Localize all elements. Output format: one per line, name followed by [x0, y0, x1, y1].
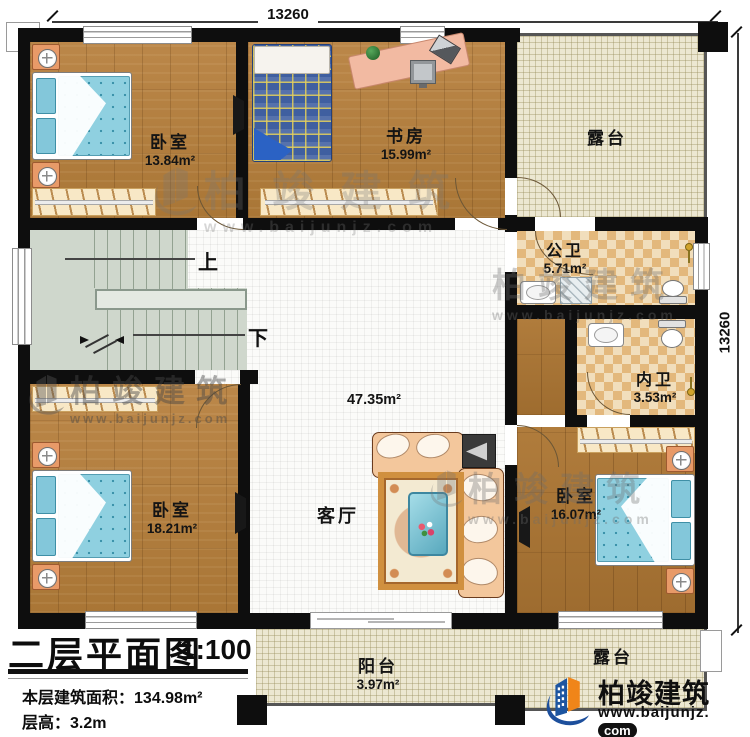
label-living: 客厅 [306, 502, 370, 528]
wall-tv-icon [233, 95, 244, 135]
label-bedroom-r: 卧室 16.07m² [536, 482, 616, 522]
toilet-bowl [662, 280, 684, 297]
sink [520, 281, 556, 304]
wall-stair-bottom [18, 370, 195, 384]
window [83, 26, 192, 44]
lamp-icon [672, 451, 691, 470]
pillow [36, 78, 56, 114]
room-name: 书房 [366, 122, 446, 147]
wall-bath-divider [505, 305, 708, 319]
window [558, 611, 663, 629]
wardrobe [32, 386, 158, 412]
label-public-bath: 公卫 5.71m² [532, 237, 598, 276]
plan-scale: 1:100 [180, 634, 252, 666]
floor-bath-corridor [517, 319, 565, 415]
stair-down-leader [133, 334, 245, 336]
door-study [455, 178, 507, 230]
daybed-pillow [254, 46, 330, 74]
wall-ensuite-bottom [565, 415, 587, 427]
lamp-icon [38, 167, 57, 186]
monitor-stand [419, 84, 427, 88]
monitor-icon [410, 60, 436, 84]
wall-living-right [505, 272, 517, 425]
dimension-line-right [737, 33, 739, 633]
room-name: 卧室 [132, 496, 212, 521]
room-name: 卧室 [536, 482, 616, 507]
floor-area-value: 134.98m² [134, 690, 203, 707]
brand-logo: 柏竣建筑 www.baijunjz.com [538, 666, 748, 732]
wardrobe [32, 188, 156, 216]
floor-area-label: 本层建筑面积： [22, 690, 134, 707]
label-bedroom-bl: 卧室 18.21m² [132, 496, 212, 536]
toilet-tank [659, 296, 687, 304]
brand-logo-icon [538, 668, 596, 730]
label-balcony: 阳台 3.97m² [338, 652, 418, 692]
wall-terrace-bath [595, 217, 708, 231]
room-name: 公卫 [532, 237, 598, 261]
floor-area-line: 本层建筑面积：134.98m² [22, 684, 203, 708]
pillow [36, 476, 56, 514]
room-area: 13.84m² [130, 153, 210, 168]
nightstand [666, 446, 694, 472]
window [12, 248, 32, 345]
dimension-line-top [52, 21, 718, 23]
dimension-top-label: 13260 [258, 6, 318, 23]
wall-living-right [505, 465, 517, 613]
floor-drain-icon [687, 388, 695, 396]
room-area: 15.99m² [366, 147, 446, 162]
toilet-tank [658, 320, 686, 328]
column [495, 695, 525, 725]
lamp-icon [672, 573, 691, 592]
toilet-bowl [661, 329, 683, 348]
pillow [36, 118, 56, 154]
wall-tv-icon [235, 492, 246, 534]
pillow [36, 518, 56, 556]
room-area: 18.21m² [132, 521, 212, 536]
wall-stair-bottom [240, 370, 258, 384]
plant-icon [366, 46, 380, 60]
corner-tv [462, 434, 496, 468]
brand-url-suffix: com [598, 723, 637, 737]
drain-stem [688, 251, 690, 263]
stair-up-leader [65, 258, 195, 260]
column [698, 22, 728, 52]
lamp-icon [38, 49, 57, 68]
room-name: 露台 [572, 124, 642, 149]
shower [560, 277, 592, 304]
floor-height-value: 3.2m [70, 715, 106, 732]
room-area: 5.71m² [532, 261, 598, 276]
floor-plan: 13260 13260 上 下 [0, 0, 750, 737]
lamp-icon [38, 569, 57, 588]
stair-handrail [95, 289, 247, 310]
wardrobe [260, 188, 438, 216]
balcony-parapet [254, 703, 524, 706]
door-bedroom-tl [197, 186, 243, 230]
room-name: 阳台 [338, 652, 418, 677]
nightstand [32, 564, 60, 590]
pillow [671, 522, 691, 560]
dimension-right-label: 13260 [717, 303, 734, 363]
brand-url-prefix: www.baijunjz. [598, 704, 710, 721]
room-name: 卧室 [130, 128, 210, 153]
nightstand [32, 162, 60, 188]
wall-ensuite-left [565, 319, 577, 415]
terrace-top-parapet [517, 33, 707, 36]
stair-landing-lower [30, 288, 97, 370]
pillow [671, 480, 691, 518]
label-living-area: 47.35m² [342, 392, 406, 408]
label-terrace-bottom: 露台 [578, 643, 648, 668]
brand-url-line: www.baijunjz.com [598, 704, 748, 737]
nightstand [32, 44, 60, 70]
sliding-door-balcony [310, 612, 452, 629]
label-bedroom-tl: 卧室 13.84m² [130, 128, 210, 168]
wall-mid-h [18, 218, 197, 230]
wall-mid-h [243, 218, 455, 230]
stair-down-label: 下 [248, 322, 268, 351]
floor-height-line: 层高：3.2m [22, 709, 106, 733]
nightstand [666, 568, 694, 594]
nightstand [32, 442, 60, 468]
sink [588, 323, 624, 347]
room-name: 内卫 [622, 366, 688, 390]
column [237, 695, 267, 725]
wall-terrace-bath [505, 217, 535, 231]
room-area: 16.07m² [536, 507, 616, 522]
room-area: 3.97m² [338, 677, 418, 692]
stair-up-label: 上 [198, 246, 218, 275]
floor-drain-icon [685, 243, 693, 251]
title-underline-thin [8, 678, 248, 679]
sink-basin [594, 327, 618, 343]
sink-basin [526, 285, 550, 300]
tv-screen-cone [466, 441, 487, 462]
title-underline [8, 669, 248, 674]
label-terrace-top: 露台 [572, 124, 642, 149]
wall-ensuite-bottom [630, 415, 708, 427]
table-flowers [414, 518, 440, 540]
wall-living-right [505, 42, 517, 178]
label-ensuite-bath: 内卫 3.53m² [622, 366, 688, 405]
label-study: 书房 15.99m² [366, 122, 446, 162]
wall-tv-icon [519, 506, 530, 548]
window [693, 243, 710, 290]
lamp-icon [38, 447, 57, 466]
terrace-top-parapet-right [704, 33, 707, 217]
drain-stem [690, 377, 692, 388]
stair-direction-arrow [115, 336, 124, 344]
room-area: 3.53m² [622, 390, 688, 405]
floor-height-label: 层高： [22, 715, 70, 732]
stair-direction-arrow [80, 336, 89, 344]
